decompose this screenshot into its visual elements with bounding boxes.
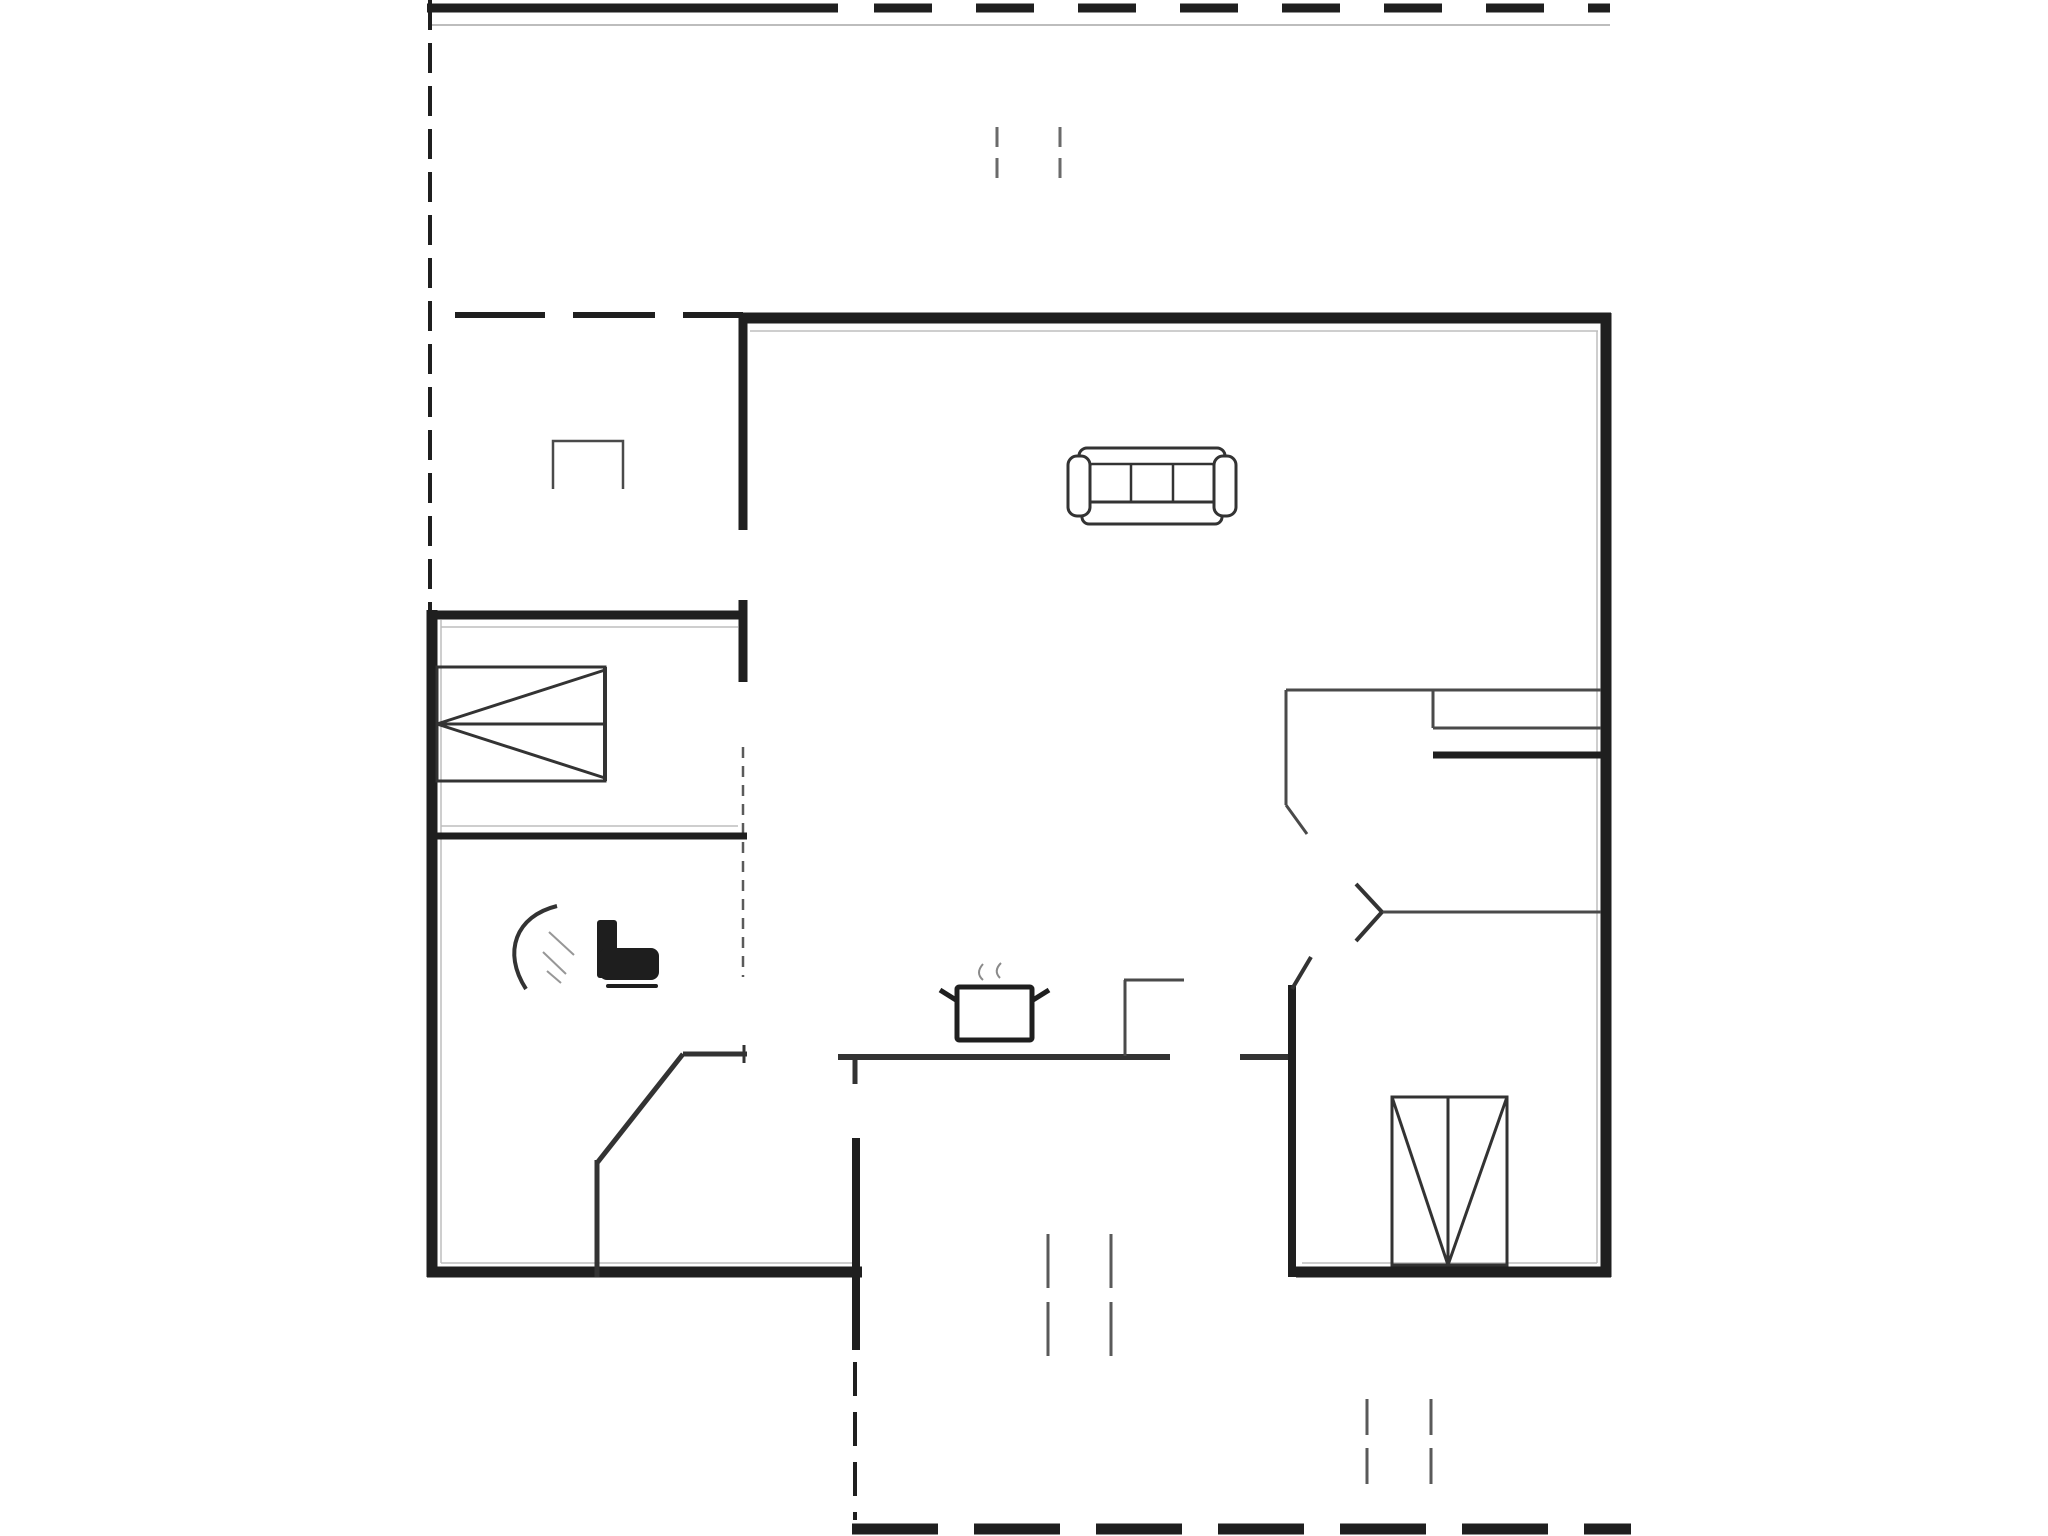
door-chevron-lower-arm [1356, 912, 1382, 941]
walls-layer [427, 0, 1631, 1529]
furniture-layer [437, 441, 1507, 1265]
single-bed-icon-right [1392, 1097, 1507, 1265]
single-bed-icon-left [437, 667, 605, 781]
shower-icon [514, 906, 574, 989]
toilet-icon [597, 920, 659, 988]
bathroom-diagonal-wall [597, 1054, 683, 1163]
floor-plan [0, 0, 2048, 1536]
door-chevron-upper-arm [1356, 884, 1382, 912]
floor-plan-canvas [0, 0, 2048, 1536]
bedroom2-door-jamb-diag [1292, 957, 1311, 989]
cooking-pot-icon [940, 963, 1049, 1040]
fireplace-box-icon [553, 441, 623, 489]
sofa-icon [1068, 448, 1236, 524]
room-divider-upper-jamb-diag [1286, 805, 1307, 834]
